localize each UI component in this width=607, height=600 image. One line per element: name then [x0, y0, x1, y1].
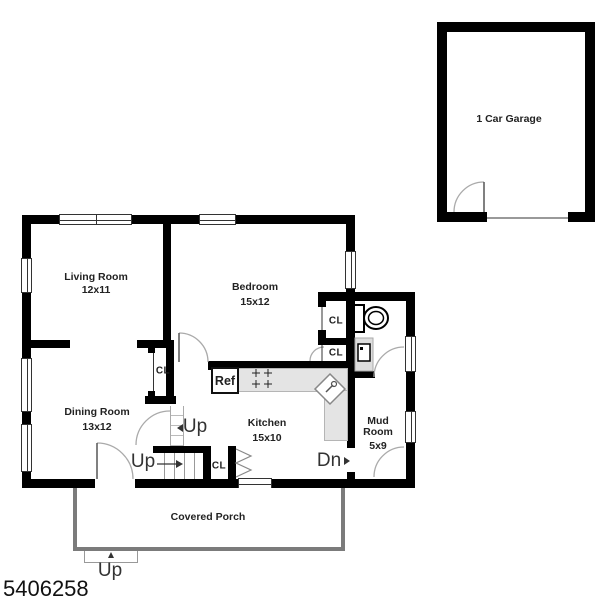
wall-segment	[437, 22, 447, 222]
window-divider	[96, 215, 97, 224]
wall-segment	[163, 224, 171, 347]
kitchen-dims: 15x10	[252, 432, 281, 444]
garage-door-opening	[487, 217, 568, 219]
wall-segment	[346, 292, 355, 377]
wall-segment	[145, 396, 176, 404]
wall-segment	[437, 212, 487, 222]
living-room-label: Living Room	[64, 271, 128, 283]
wall-segment	[568, 212, 595, 222]
refrigerator-label: Ref	[215, 374, 235, 388]
dining-room-dims: 13x12	[82, 421, 111, 433]
kitchen-label: Kitchen	[248, 417, 287, 429]
bathroom-door-arc	[374, 347, 404, 377]
wall-segment	[203, 446, 211, 481]
bedroom-closet1-label: CL	[329, 316, 343, 327]
wall-segment	[22, 479, 95, 488]
hall-closet-label: CL	[156, 366, 170, 377]
wall-segment	[272, 479, 415, 488]
plan-number: 5406258	[3, 576, 89, 600]
door-jamb	[318, 330, 326, 338]
down-arrow	[344, 457, 350, 465]
bedroom-closet2-label: CL	[329, 348, 343, 359]
wall-segment	[228, 446, 236, 481]
wall-segment	[318, 292, 415, 301]
kitchen-counter	[324, 390, 348, 441]
mudroom-dims: 5x9	[369, 440, 387, 452]
mudroom-label-2: Room	[363, 426, 393, 438]
porch-up-label: Up	[98, 560, 122, 582]
bedroom-dims: 15x12	[240, 296, 269, 308]
door-jamb	[148, 391, 155, 397]
window	[345, 251, 356, 289]
garage-label: 1 Car Garage	[476, 113, 541, 125]
wall-segment	[31, 340, 70, 348]
kitchen-counter	[237, 368, 348, 392]
floor-plan: Ref	[0, 0, 607, 600]
up-landing-label: Up	[183, 416, 207, 438]
wall-segment	[347, 472, 355, 488]
porch-label: Covered Porch	[171, 511, 246, 523]
hall-door-arc	[136, 411, 170, 445]
stair-closet-label: CL	[212, 461, 226, 472]
garage-door-arc	[454, 182, 484, 212]
bifold-door	[236, 449, 251, 477]
window	[21, 358, 32, 412]
toilet-icon	[354, 305, 388, 332]
wall-segment	[135, 479, 238, 488]
wall-segment	[406, 292, 415, 488]
window	[21, 424, 32, 472]
window	[199, 214, 236, 225]
closet2-door-arc	[310, 347, 324, 361]
down-label: Dn	[317, 450, 341, 472]
door-jamb	[318, 299, 326, 307]
window	[59, 214, 132, 225]
bedroom-label: Bedroom	[232, 281, 278, 293]
door-jamb	[148, 347, 155, 353]
dining-room-label: Dining Room	[64, 406, 129, 418]
front-door-arc	[97, 443, 133, 479]
wall-segment	[585, 22, 595, 222]
bedroom-door-arc	[179, 333, 208, 362]
living-room-dims: 12x11	[82, 284, 111, 296]
window	[405, 336, 416, 372]
stair-treads	[155, 453, 204, 479]
window	[405, 411, 416, 443]
refrigerator: Ref	[211, 367, 239, 394]
window	[21, 258, 32, 293]
up-stairs-label: Up	[131, 451, 155, 473]
sink-icon	[355, 338, 373, 371]
wall-segment	[347, 377, 355, 448]
wall-segment	[437, 22, 595, 32]
